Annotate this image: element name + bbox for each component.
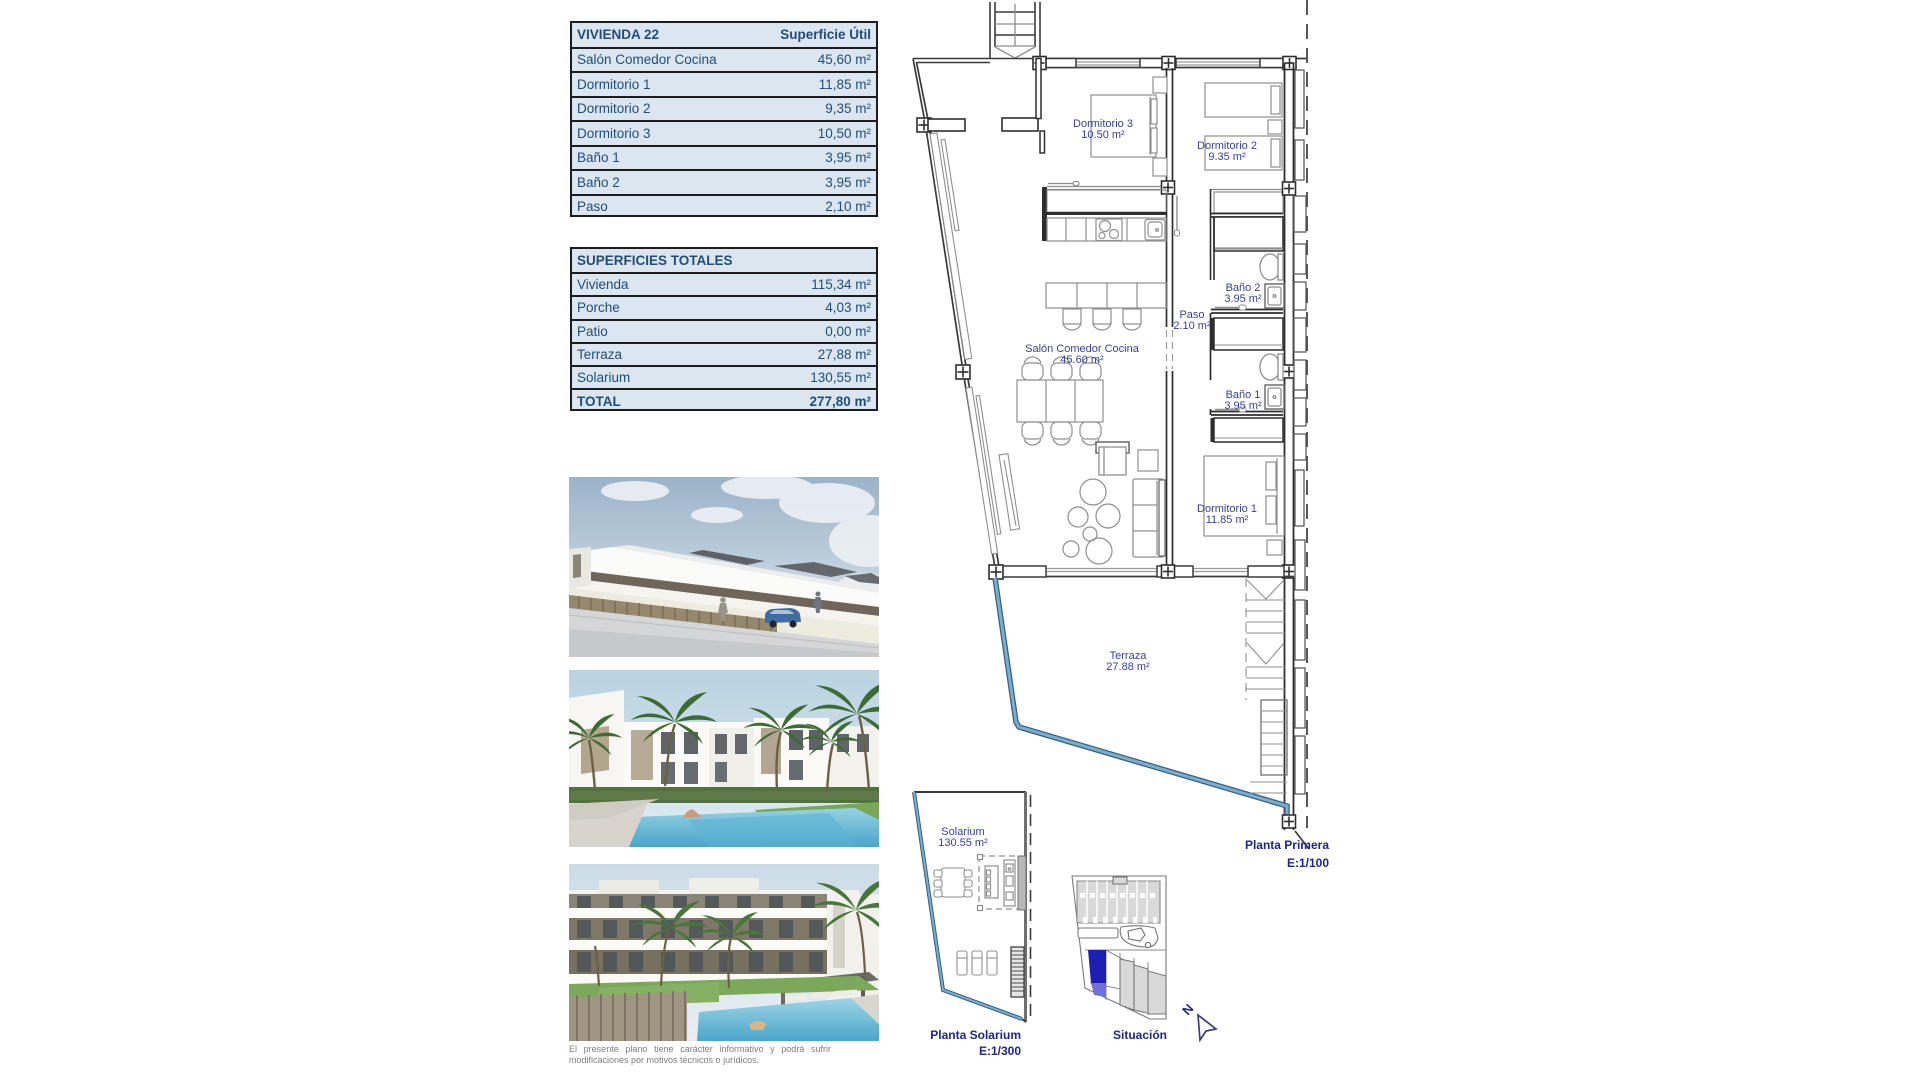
svg-text:N: N <box>1179 1001 1196 1018</box>
svg-text:Planta Solarium: Planta Solarium <box>930 1028 1021 1042</box>
svg-text:3.95 m²: 3.95 m² <box>1224 400 1262 412</box>
svg-text:2.10 m²: 2.10 m² <box>1173 320 1211 332</box>
svg-text:45.60 m²: 45.60 m² <box>1060 354 1104 366</box>
svg-text:27.88 m²: 27.88 m² <box>1106 661 1150 673</box>
svg-text:130.55 m²: 130.55 m² <box>938 837 988 849</box>
svg-text:3.95 m²: 3.95 m² <box>1224 293 1262 305</box>
svg-text:E:1/100: E:1/100 <box>1287 856 1329 870</box>
svg-text:9.35 m²: 9.35 m² <box>1208 151 1246 163</box>
svg-text:Planta Primera: Planta Primera <box>1245 838 1329 852</box>
svg-text:10.50 m²: 10.50 m² <box>1081 129 1125 141</box>
svg-text:11.85 m²: 11.85 m² <box>1206 514 1249 526</box>
svg-text:Situación: Situación <box>1113 1028 1167 1042</box>
svg-text:E:1/300: E:1/300 <box>979 1044 1021 1058</box>
